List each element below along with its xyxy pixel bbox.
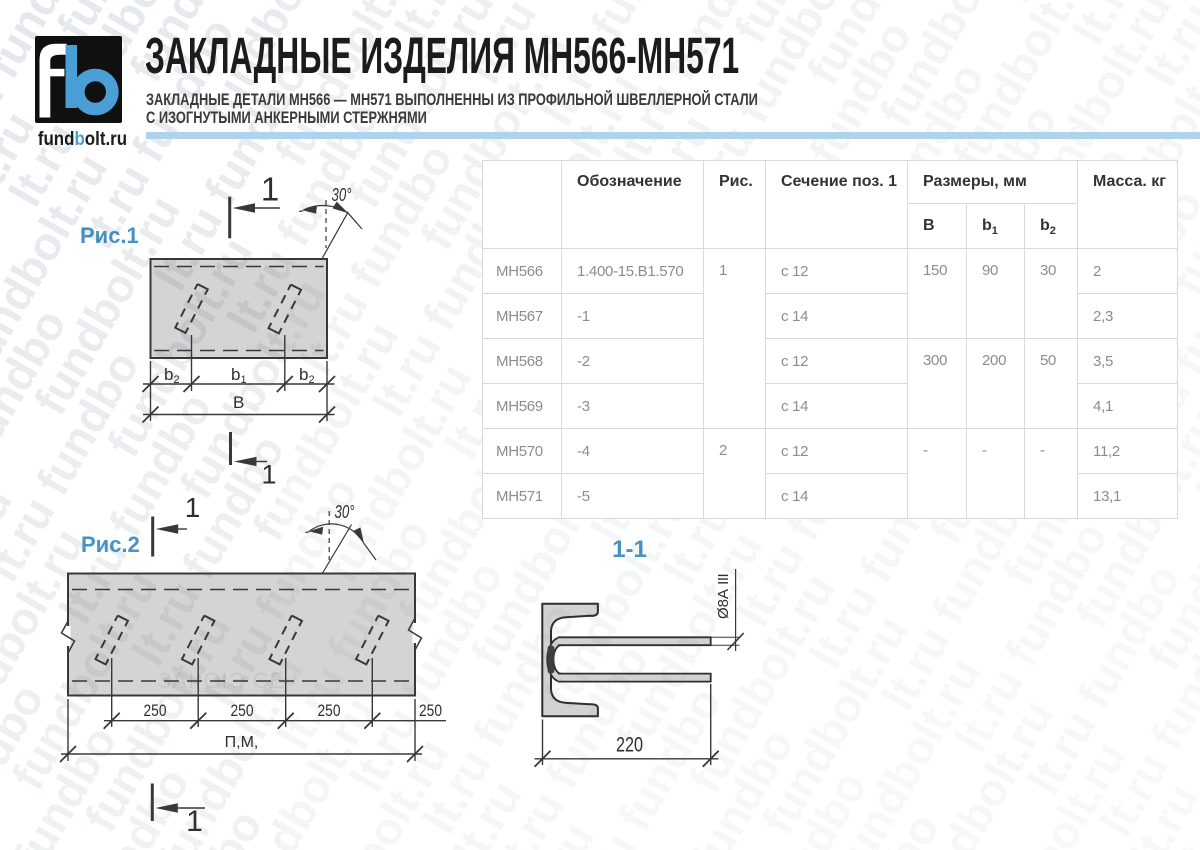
svg-text:b2: b2 [299, 365, 315, 386]
svg-text:Ø8А III: Ø8А III [715, 574, 732, 619]
svg-text:1: 1 [186, 805, 203, 838]
svg-text:1: 1 [185, 492, 201, 523]
svg-text:250: 250 [318, 701, 341, 720]
svg-text:В: В [233, 393, 244, 412]
svg-text:1-1: 1-1 [612, 536, 647, 563]
svg-text:1: 1 [261, 171, 279, 208]
svg-text:b2: b2 [164, 365, 180, 386]
svg-text:Рис.1: Рис.1 [80, 223, 139, 248]
svg-text:Рис.2: Рис.2 [81, 532, 140, 557]
svg-text:250: 250 [144, 701, 167, 720]
svg-text:220: 220 [616, 734, 643, 757]
svg-text:250: 250 [419, 701, 442, 720]
svg-text:1: 1 [261, 460, 276, 490]
svg-text:30°: 30° [332, 184, 352, 205]
svg-text:П,М,: П,М, [225, 734, 259, 751]
svg-text:250: 250 [231, 701, 254, 720]
svg-text:30°: 30° [335, 501, 355, 522]
svg-text:b1: b1 [231, 365, 247, 386]
